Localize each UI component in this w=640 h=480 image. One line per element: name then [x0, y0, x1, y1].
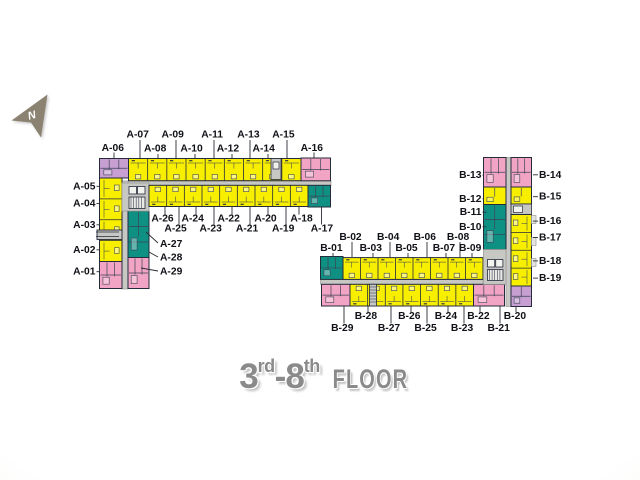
svg-text:B-19: B-19 — [539, 273, 562, 284]
svg-text:A-06: A-06 — [102, 143, 125, 154]
svg-text:B-26: B-26 — [398, 311, 421, 322]
svg-text:B-11: B-11 — [460, 207, 482, 218]
svg-text:A-19: A-19 — [272, 224, 295, 235]
svg-text:B-14: B-14 — [539, 170, 562, 181]
svg-text:B-07: B-07 — [433, 243, 456, 254]
svg-text:B-02: B-02 — [339, 232, 362, 243]
svg-text:B-22: B-22 — [467, 311, 490, 322]
svg-text:A-29: A-29 — [160, 266, 183, 277]
svg-text:B-09: B-09 — [459, 243, 482, 254]
svg-text:B-06: B-06 — [414, 232, 437, 243]
svg-text:B-27: B-27 — [378, 323, 401, 334]
svg-text:A-17: A-17 — [311, 224, 334, 235]
svg-text:B-24: B-24 — [435, 311, 458, 322]
svg-text:A-15: A-15 — [272, 130, 295, 141]
svg-text:A-05: A-05 — [73, 181, 96, 192]
svg-text:A-27: A-27 — [160, 239, 183, 250]
svg-text:A-23: A-23 — [200, 224, 223, 235]
svg-text:B-16: B-16 — [539, 216, 562, 227]
svg-text:B-08: B-08 — [447, 232, 470, 243]
svg-text:B-25: B-25 — [414, 323, 437, 334]
svg-text:B-17: B-17 — [539, 233, 562, 244]
svg-text:B-04: B-04 — [377, 232, 400, 243]
svg-text:B-21: B-21 — [488, 323, 511, 334]
svg-text:A-09: A-09 — [162, 130, 185, 141]
svg-text:A-16: A-16 — [301, 143, 324, 154]
svg-text:B-18: B-18 — [539, 256, 562, 267]
svg-text:B-13: B-13 — [459, 170, 482, 181]
svg-text:A-07: A-07 — [127, 130, 150, 141]
svg-text:B-20: B-20 — [504, 311, 527, 322]
svg-text:B-29: B-29 — [331, 323, 354, 334]
svg-text:A-03: A-03 — [73, 220, 96, 231]
svg-text:B-05: B-05 — [395, 243, 418, 254]
svg-text:A-13: A-13 — [237, 130, 260, 141]
svg-text:B-03: B-03 — [360, 243, 383, 254]
svg-text:B-15: B-15 — [539, 192, 562, 203]
svg-text:A-01: A-01 — [73, 267, 96, 278]
svg-text:B-23: B-23 — [451, 323, 474, 334]
svg-text:B-10: B-10 — [459, 222, 482, 233]
svg-text:A-04: A-04 — [73, 199, 96, 210]
svg-text:A-10: A-10 — [180, 144, 203, 155]
svg-text:B-01: B-01 — [320, 243, 343, 254]
svg-text:A-28: A-28 — [160, 252, 183, 263]
svg-text:A-08: A-08 — [144, 144, 167, 155]
svg-text:A-14: A-14 — [253, 144, 276, 155]
svg-text:A-12: A-12 — [217, 144, 240, 155]
svg-text:A-21: A-21 — [236, 224, 259, 235]
svg-text:A-02: A-02 — [73, 245, 96, 256]
svg-text:A-25: A-25 — [164, 224, 187, 235]
svg-text:B-12: B-12 — [459, 194, 482, 205]
svg-text:B-28: B-28 — [355, 311, 378, 322]
svg-text:A-11: A-11 — [201, 130, 223, 141]
